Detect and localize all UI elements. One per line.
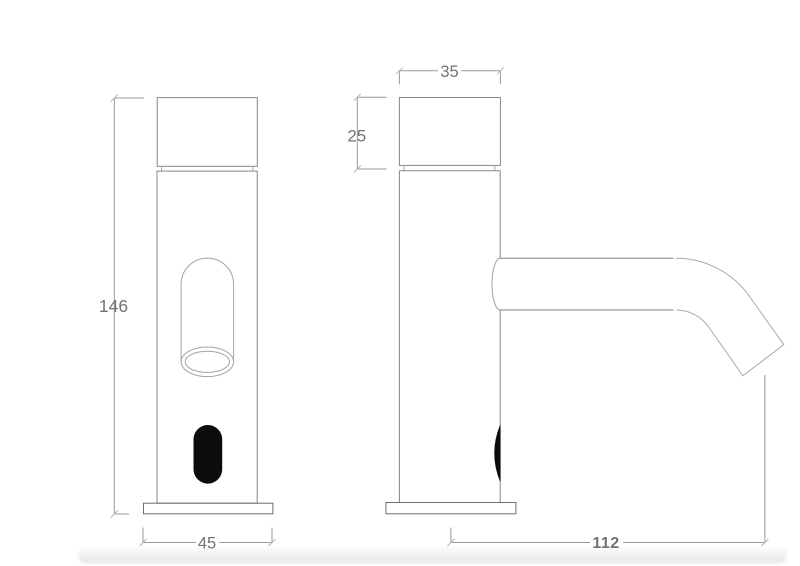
svg-text:45: 45 xyxy=(198,535,216,553)
svg-text:112: 112 xyxy=(592,535,619,552)
svg-text:35: 35 xyxy=(440,63,458,81)
svg-text:25: 25 xyxy=(347,127,366,146)
svg-text:146: 146 xyxy=(99,296,128,316)
